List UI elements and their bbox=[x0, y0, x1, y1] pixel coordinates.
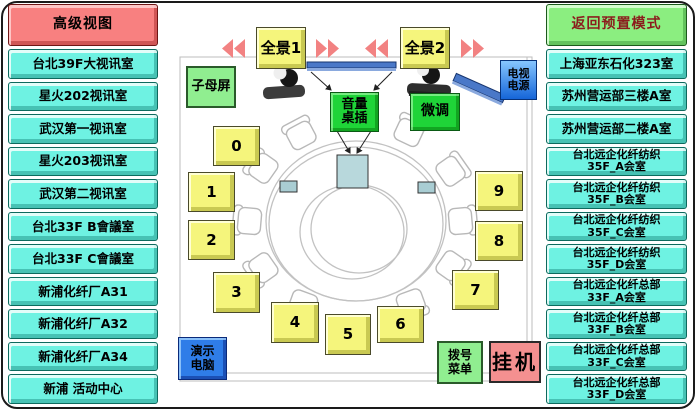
table-mic-icon bbox=[418, 182, 435, 193]
seat-preset-button-0[interactable]: 0 bbox=[213, 126, 260, 166]
demo-pc-button[interactable]: 演示 电脑 bbox=[178, 337, 227, 380]
seat-preset-button-2[interactable]: 2 bbox=[188, 220, 235, 260]
room-button[interactable]: 台北远企化纤总部 33F_B会室 bbox=[546, 309, 687, 339]
pan-right-icon[interactable] bbox=[461, 39, 484, 58]
chair bbox=[433, 150, 473, 191]
seat-preset-button-1[interactable]: 1 bbox=[188, 172, 235, 212]
room-button[interactable]: 新浦化纤厂A34 bbox=[8, 342, 158, 372]
pip-screen-button[interactable]: 子母屏 bbox=[186, 66, 236, 108]
seat-preset-button-7[interactable]: 7 bbox=[452, 270, 499, 310]
room-button[interactable]: 武汉第二视讯室 bbox=[8, 179, 158, 209]
panorama-2-button[interactable]: 全景2 bbox=[400, 27, 450, 69]
seat-preset-button-4[interactable]: 4 bbox=[271, 302, 319, 343]
volume-socket-button[interactable]: 音量 桌插 bbox=[330, 92, 379, 132]
left-sidebar: 高级视图 台北39F大视讯室 星火202视讯室 武汉第一视讯室 星火203视讯室… bbox=[8, 4, 158, 404]
room-button[interactable]: 新浦 活动中心 bbox=[8, 374, 158, 404]
room-button[interactable]: 台北39F大视讯室 bbox=[8, 49, 158, 79]
camera-icon bbox=[263, 67, 306, 100]
room-button[interactable]: 星火202视讯室 bbox=[8, 82, 158, 112]
advanced-view-button[interactable]: 高级视图 bbox=[8, 4, 158, 46]
panorama-1-button[interactable]: 全景1 bbox=[256, 27, 306, 69]
right-sidebar: 返回预置模式 上海亚东石化323室 苏州营运部三楼A室 苏州营运部二楼A室 台北… bbox=[546, 4, 687, 404]
seat-preset-button-6[interactable]: 6 bbox=[377, 306, 424, 343]
seat-preset-button-8[interactable]: 8 bbox=[475, 221, 523, 261]
tv-screen-top-icon bbox=[307, 62, 396, 71]
seat-preset-button-9[interactable]: 9 bbox=[475, 171, 523, 211]
seat-preset-button-3[interactable]: 3 bbox=[213, 272, 260, 313]
room-button[interactable]: 台北远企化纤纺织 35F_A会室 bbox=[546, 147, 687, 177]
room-button[interactable]: 台北远企化纤总部 33F_C会室 bbox=[546, 342, 687, 372]
video-conference-control-panel: 高级视图 台北39F大视讯室 星火202视讯室 武汉第一视讯室 星火203视讯室… bbox=[0, 0, 696, 411]
room-button[interactable]: 台北33F C會議室 bbox=[8, 244, 158, 274]
seat-preset-button-5[interactable]: 5 bbox=[325, 314, 371, 355]
room-button[interactable]: 上海亚东石化323室 bbox=[546, 49, 687, 79]
pan-left-icon[interactable] bbox=[222, 39, 245, 58]
tv-power-button[interactable]: 电视 电源 bbox=[500, 60, 537, 100]
table-socket-icon bbox=[337, 155, 368, 188]
chair bbox=[232, 205, 263, 237]
room-button[interactable]: 武汉第一视讯室 bbox=[8, 114, 158, 144]
chair bbox=[448, 205, 479, 237]
pan-left-icon[interactable] bbox=[365, 39, 388, 58]
room-button[interactable]: 台北33F B會議室 bbox=[8, 212, 158, 242]
pan-right-icon[interactable] bbox=[316, 39, 339, 58]
room-button[interactable]: 新浦化纤厂A31 bbox=[8, 277, 158, 307]
room-button[interactable]: 台北远企化纤总部 33F_D会室 bbox=[546, 374, 687, 404]
room-button[interactable]: 台北远企化纤总部 33F_A会室 bbox=[546, 277, 687, 307]
room-button[interactable]: 新浦化纤厂A32 bbox=[8, 309, 158, 339]
room-button[interactable]: 苏州营运部三楼A室 bbox=[546, 82, 687, 112]
room-button[interactable]: 苏州营运部二楼A室 bbox=[546, 114, 687, 144]
chair bbox=[280, 114, 320, 153]
hangup-button[interactable]: 挂机 bbox=[489, 341, 541, 383]
fine-tune-button[interactable]: 微调 bbox=[410, 93, 460, 131]
table-mic-icon bbox=[280, 181, 297, 192]
room-button[interactable]: 台北远企化纤纺织 35F_C会室 bbox=[546, 212, 687, 242]
room-button[interactable]: 台北远企化纤纺织 35F_D会室 bbox=[546, 244, 687, 274]
room-button[interactable]: 星火203视讯室 bbox=[8, 147, 158, 177]
dial-menu-button[interactable]: 拨号 菜单 bbox=[437, 341, 483, 384]
return-preset-mode-button[interactable]: 返回预置模式 bbox=[546, 4, 687, 46]
room-button[interactable]: 台北远企化纤纺织 35F_B会室 bbox=[546, 179, 687, 209]
